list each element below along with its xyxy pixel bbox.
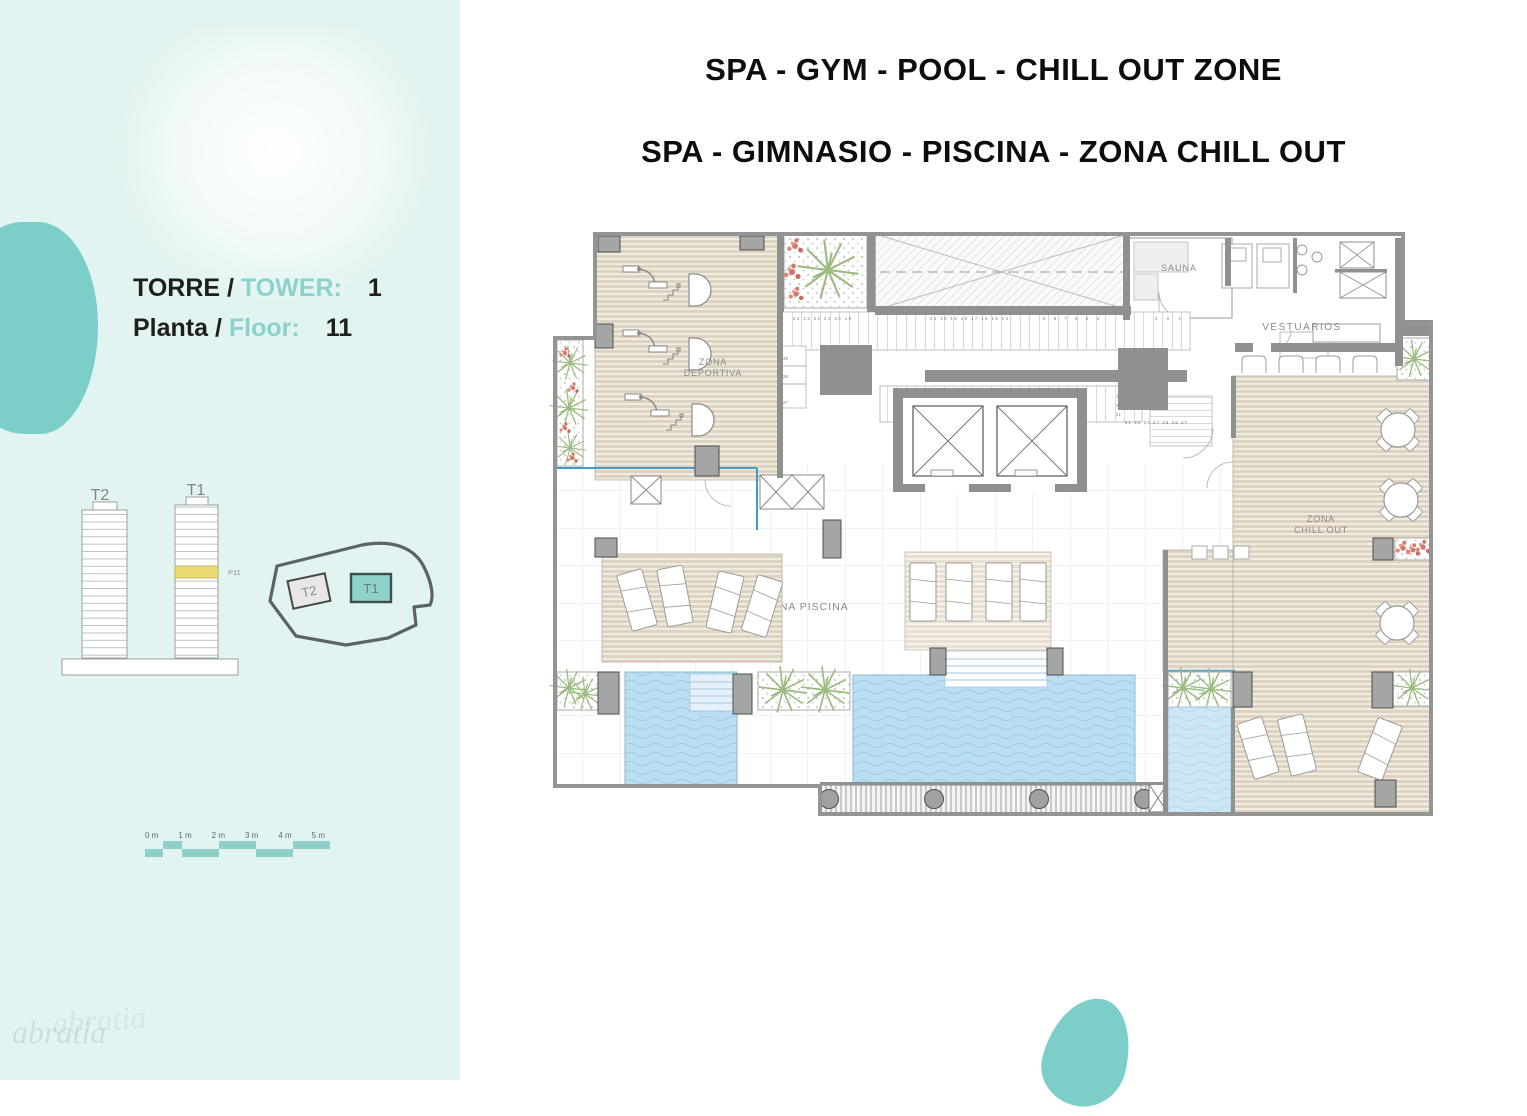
scale-label: 3 m — [245, 831, 278, 840]
floor-value: 11 — [326, 314, 352, 342]
t1-antenna — [186, 497, 208, 505]
t1-tower — [175, 505, 218, 658]
tower-label-en: TOWER: — [241, 274, 342, 302]
gym-label-line2: DEPORTIVA — [684, 368, 742, 378]
left-lounger-deck — [602, 554, 783, 662]
teal-blob-left — [0, 222, 98, 434]
watermark-text-shadow: abratia — [51, 999, 148, 1042]
planter-top — [784, 234, 867, 308]
scale-label: 1 m — [178, 831, 211, 840]
zona-deportiva-area: ZONA DEPORTIVA — [595, 234, 780, 480]
page-title-en: SPA - GYM - POOL - CHILL OUT ZONE — [460, 52, 1527, 88]
watermark: abratia abratia — [12, 1014, 106, 1051]
planter-pool-left — [550, 669, 603, 711]
scale-label: 4 m — [278, 831, 311, 840]
planter-courtyard — [1162, 667, 1232, 708]
tower-floor-info: TORRE / TOWER:1 Planta / Floor:11 — [133, 268, 382, 348]
tower-base — [62, 659, 238, 675]
tower-row: TORRE / TOWER:1 — [133, 268, 382, 308]
planter-chill-mid — [1373, 538, 1431, 560]
t2-tower — [82, 510, 127, 658]
siteplan-diagram: T2 T1 — [240, 533, 445, 663]
tower-t2-label: T2 — [91, 487, 110, 504]
scale-bar-segments — [145, 841, 345, 859]
siteplan-t1-label: T1 — [363, 581, 378, 596]
pool-left — [625, 672, 737, 787]
tower-value: 1 — [368, 274, 382, 302]
stair-numbers: 21 22 23 24 25 26 27 — [1125, 420, 1188, 425]
scale-bar: 0 m1 m2 m3 m4 m5 m — [145, 831, 345, 859]
page-title-es: SPA - GIMNASIO - PISCINA - ZONA CHILL OU… — [460, 134, 1527, 170]
cloud-decoration — [120, 30, 430, 300]
scale-label: 5 m — [312, 831, 345, 840]
scale-label: 0 m — [145, 831, 178, 840]
siteplan-t2-label: T2 — [300, 583, 318, 601]
planter-pool-center — [758, 666, 850, 713]
sauna-room: SAUNA — [1128, 238, 1232, 318]
pool-courtyard — [1168, 707, 1231, 813]
stair-number: 25 — [783, 356, 789, 361]
siteplan-t1-block: T1 — [351, 574, 391, 602]
tower-label-es: TORRE / — [133, 274, 234, 302]
stair-number: 26 — [783, 374, 789, 379]
scale-label: 2 m — [212, 831, 245, 840]
sauna-label: SAUNA — [1161, 263, 1197, 273]
stair-numbers: 24 23 22 21 20 19 — [793, 316, 852, 321]
stair-numbers: 21 20 19 18 17 16 15 14 — [930, 316, 1009, 321]
planter-chill-bottom — [1393, 669, 1431, 706]
stair-number: 21 — [1116, 412, 1121, 417]
floor-label-es: Planta / — [133, 314, 222, 342]
floor-row: Planta / Floor:11 — [133, 308, 382, 348]
floor-label-en: Floor: — [229, 314, 300, 342]
walkway-grille — [820, 785, 1166, 814]
hatched-void — [875, 234, 1128, 310]
vestuarios-label: VESTUARIOS — [1262, 322, 1341, 333]
t2-antenna — [93, 502, 117, 510]
floor-plan: ZONA DEPORTIVA SAUNA — [545, 228, 1440, 820]
core-wall-block — [820, 345, 872, 395]
main-area: SPA - GYM - POOL - CHILL OUT ZONE SPA - … — [460, 0, 1527, 1080]
siteplan-t2-block: T2 — [288, 573, 331, 608]
sidebar: TORRE / TOWER:1 Planta / Floor:11 T2 T1 … — [0, 0, 460, 1080]
chill-label-line1: ZONA — [1307, 514, 1335, 524]
elevators — [893, 388, 1087, 493]
t1-highlighted-floor — [175, 566, 218, 578]
stair-number: 27 — [783, 400, 789, 405]
core-wall — [925, 370, 1187, 382]
center-lounger-deck — [905, 552, 1051, 650]
gym-label-line1: ZONA — [699, 357, 727, 367]
chill-label-line2: CHILL OUT — [1294, 525, 1348, 535]
floor-tag: P11 — [228, 568, 241, 577]
tower-t1-label: T1 — [187, 482, 206, 499]
